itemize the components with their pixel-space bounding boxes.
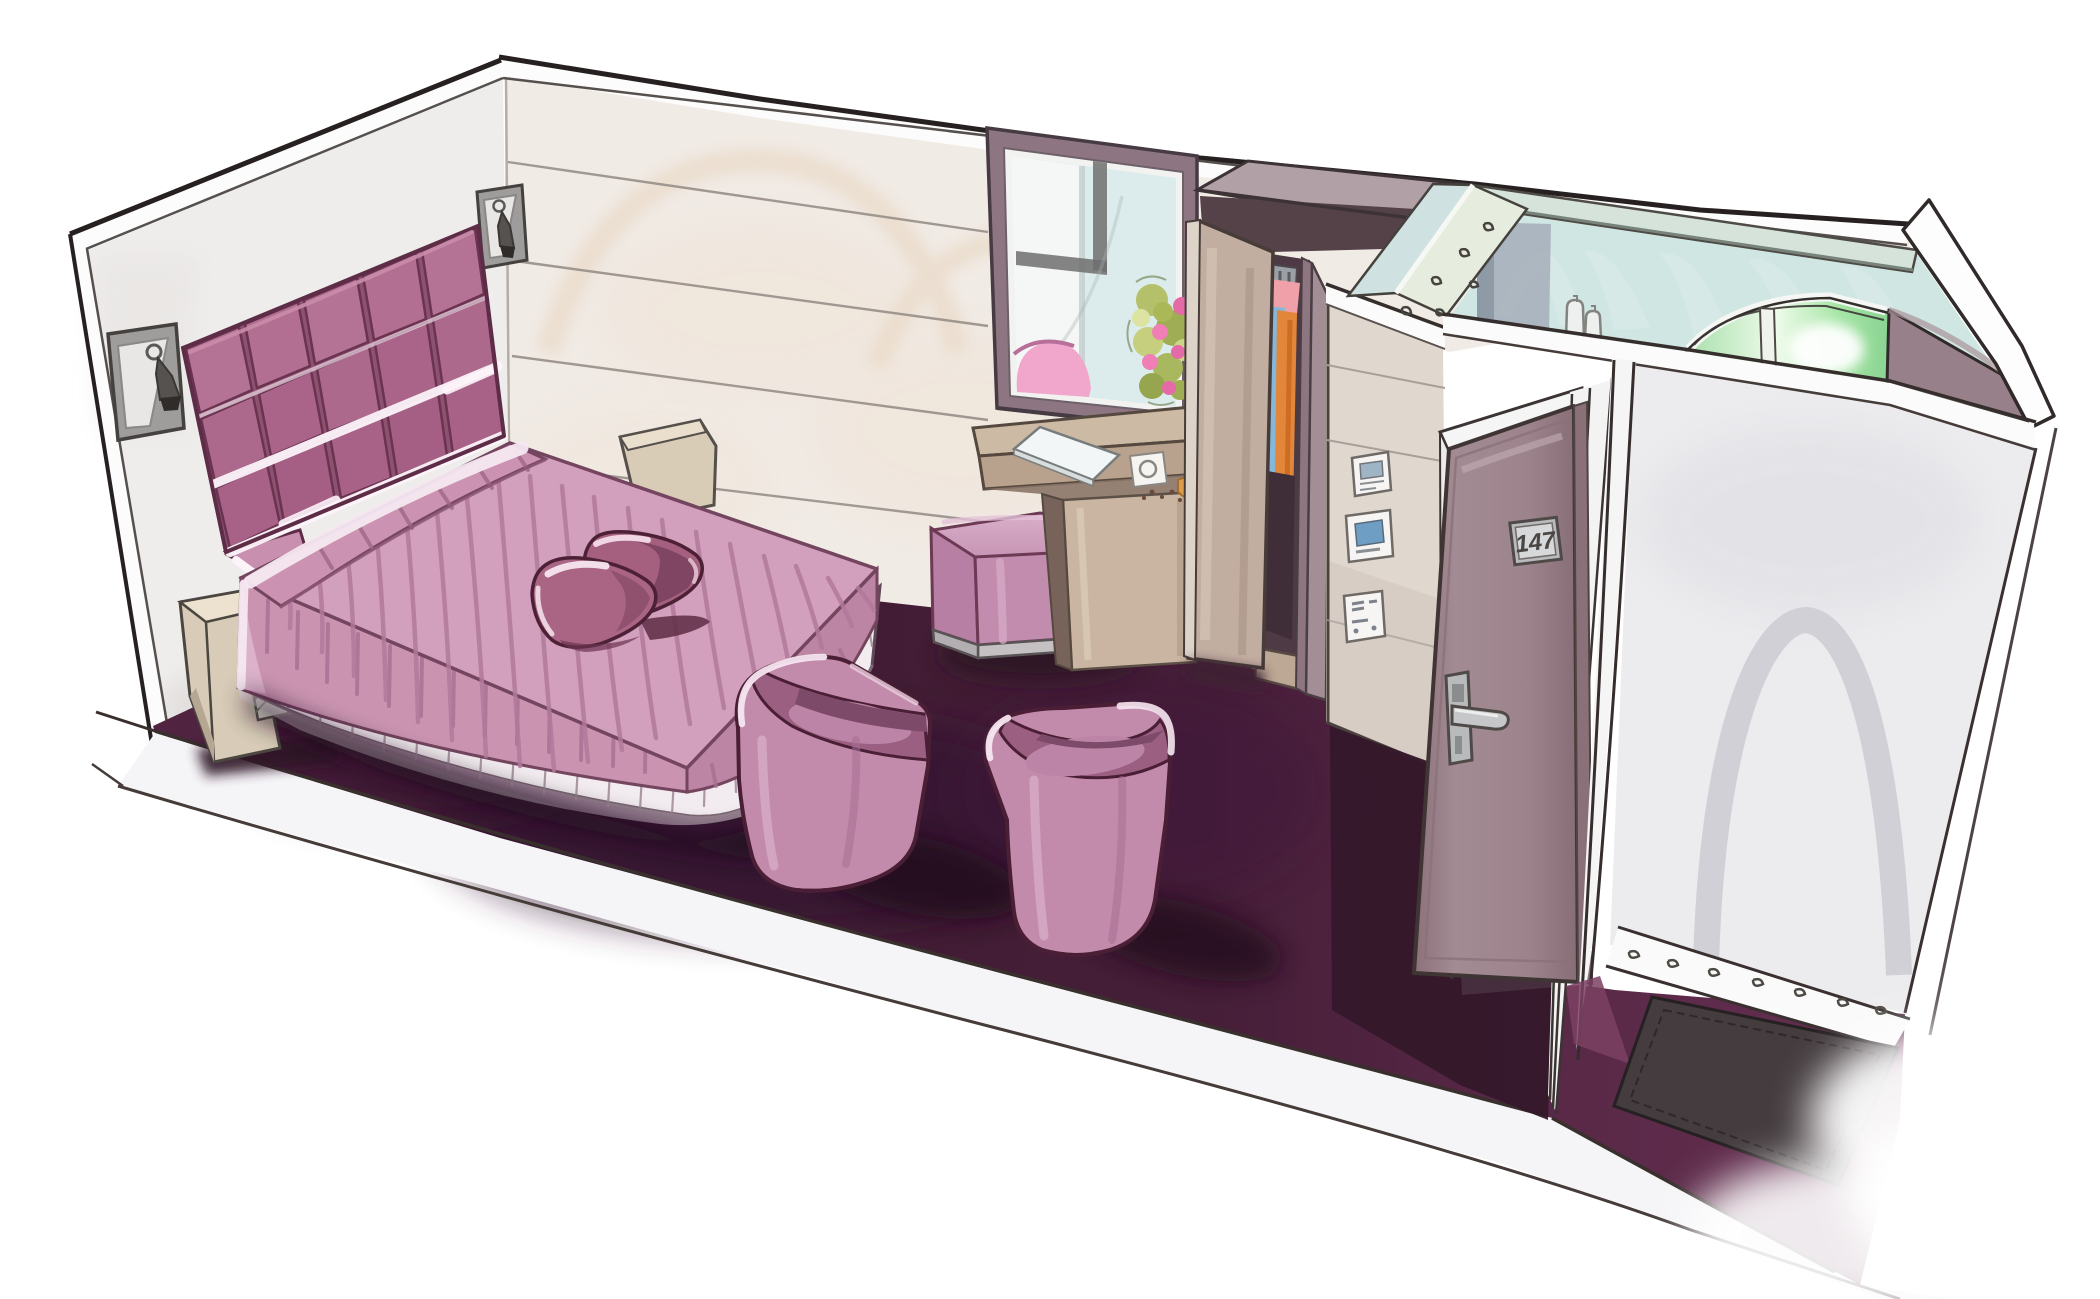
svg-text:147: 147 — [1514, 527, 1559, 559]
